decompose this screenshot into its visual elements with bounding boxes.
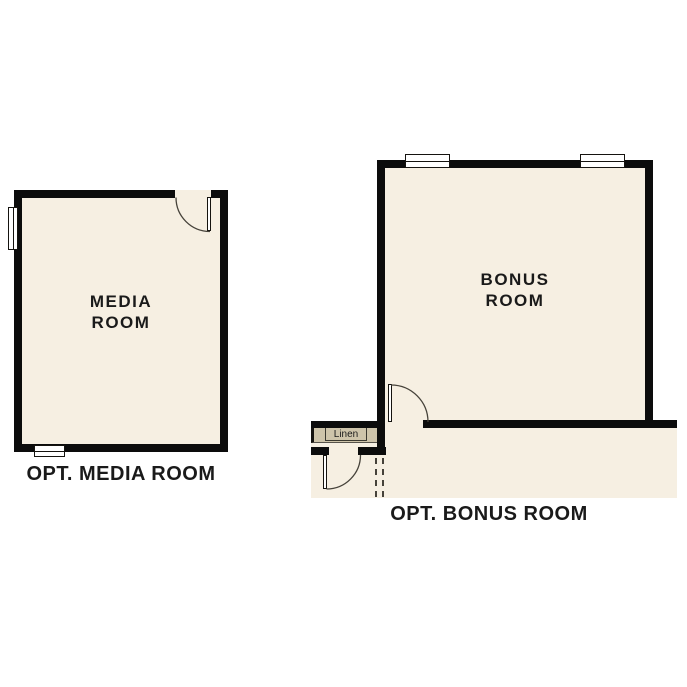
linen-label-box: Linen (325, 428, 367, 441)
media-room-caption: OPT. MEDIA ROOM (0, 463, 242, 486)
opening-dash-line (375, 458, 377, 497)
bonus-window-right (580, 154, 625, 168)
media-door-opening (175, 190, 211, 198)
linen-shelf: Linen (311, 428, 377, 443)
hall-door-leaf (323, 455, 327, 489)
media-room-label: MEDIA ROOM (21, 291, 221, 333)
wall-segment (653, 420, 677, 428)
media-window-bottom (34, 445, 65, 457)
linen-label: Linen (334, 429, 358, 440)
media-window-left (8, 207, 18, 250)
wall-segment (311, 447, 329, 455)
floorplan: MEDIA ROOM OPT. MEDIA ROOM BONUS ROOM OP… (0, 0, 687, 687)
bonus-room-caption: OPT. BONUS ROOM (369, 503, 609, 526)
bonus-door-leaf (388, 384, 392, 422)
bonus-window-left (405, 154, 450, 168)
opening-dash-line (382, 458, 384, 497)
wall-segment (311, 421, 386, 428)
wall-segment (358, 447, 386, 455)
bonus-room-label: BONUS ROOM (385, 269, 645, 311)
media-door-leaf (207, 197, 211, 231)
